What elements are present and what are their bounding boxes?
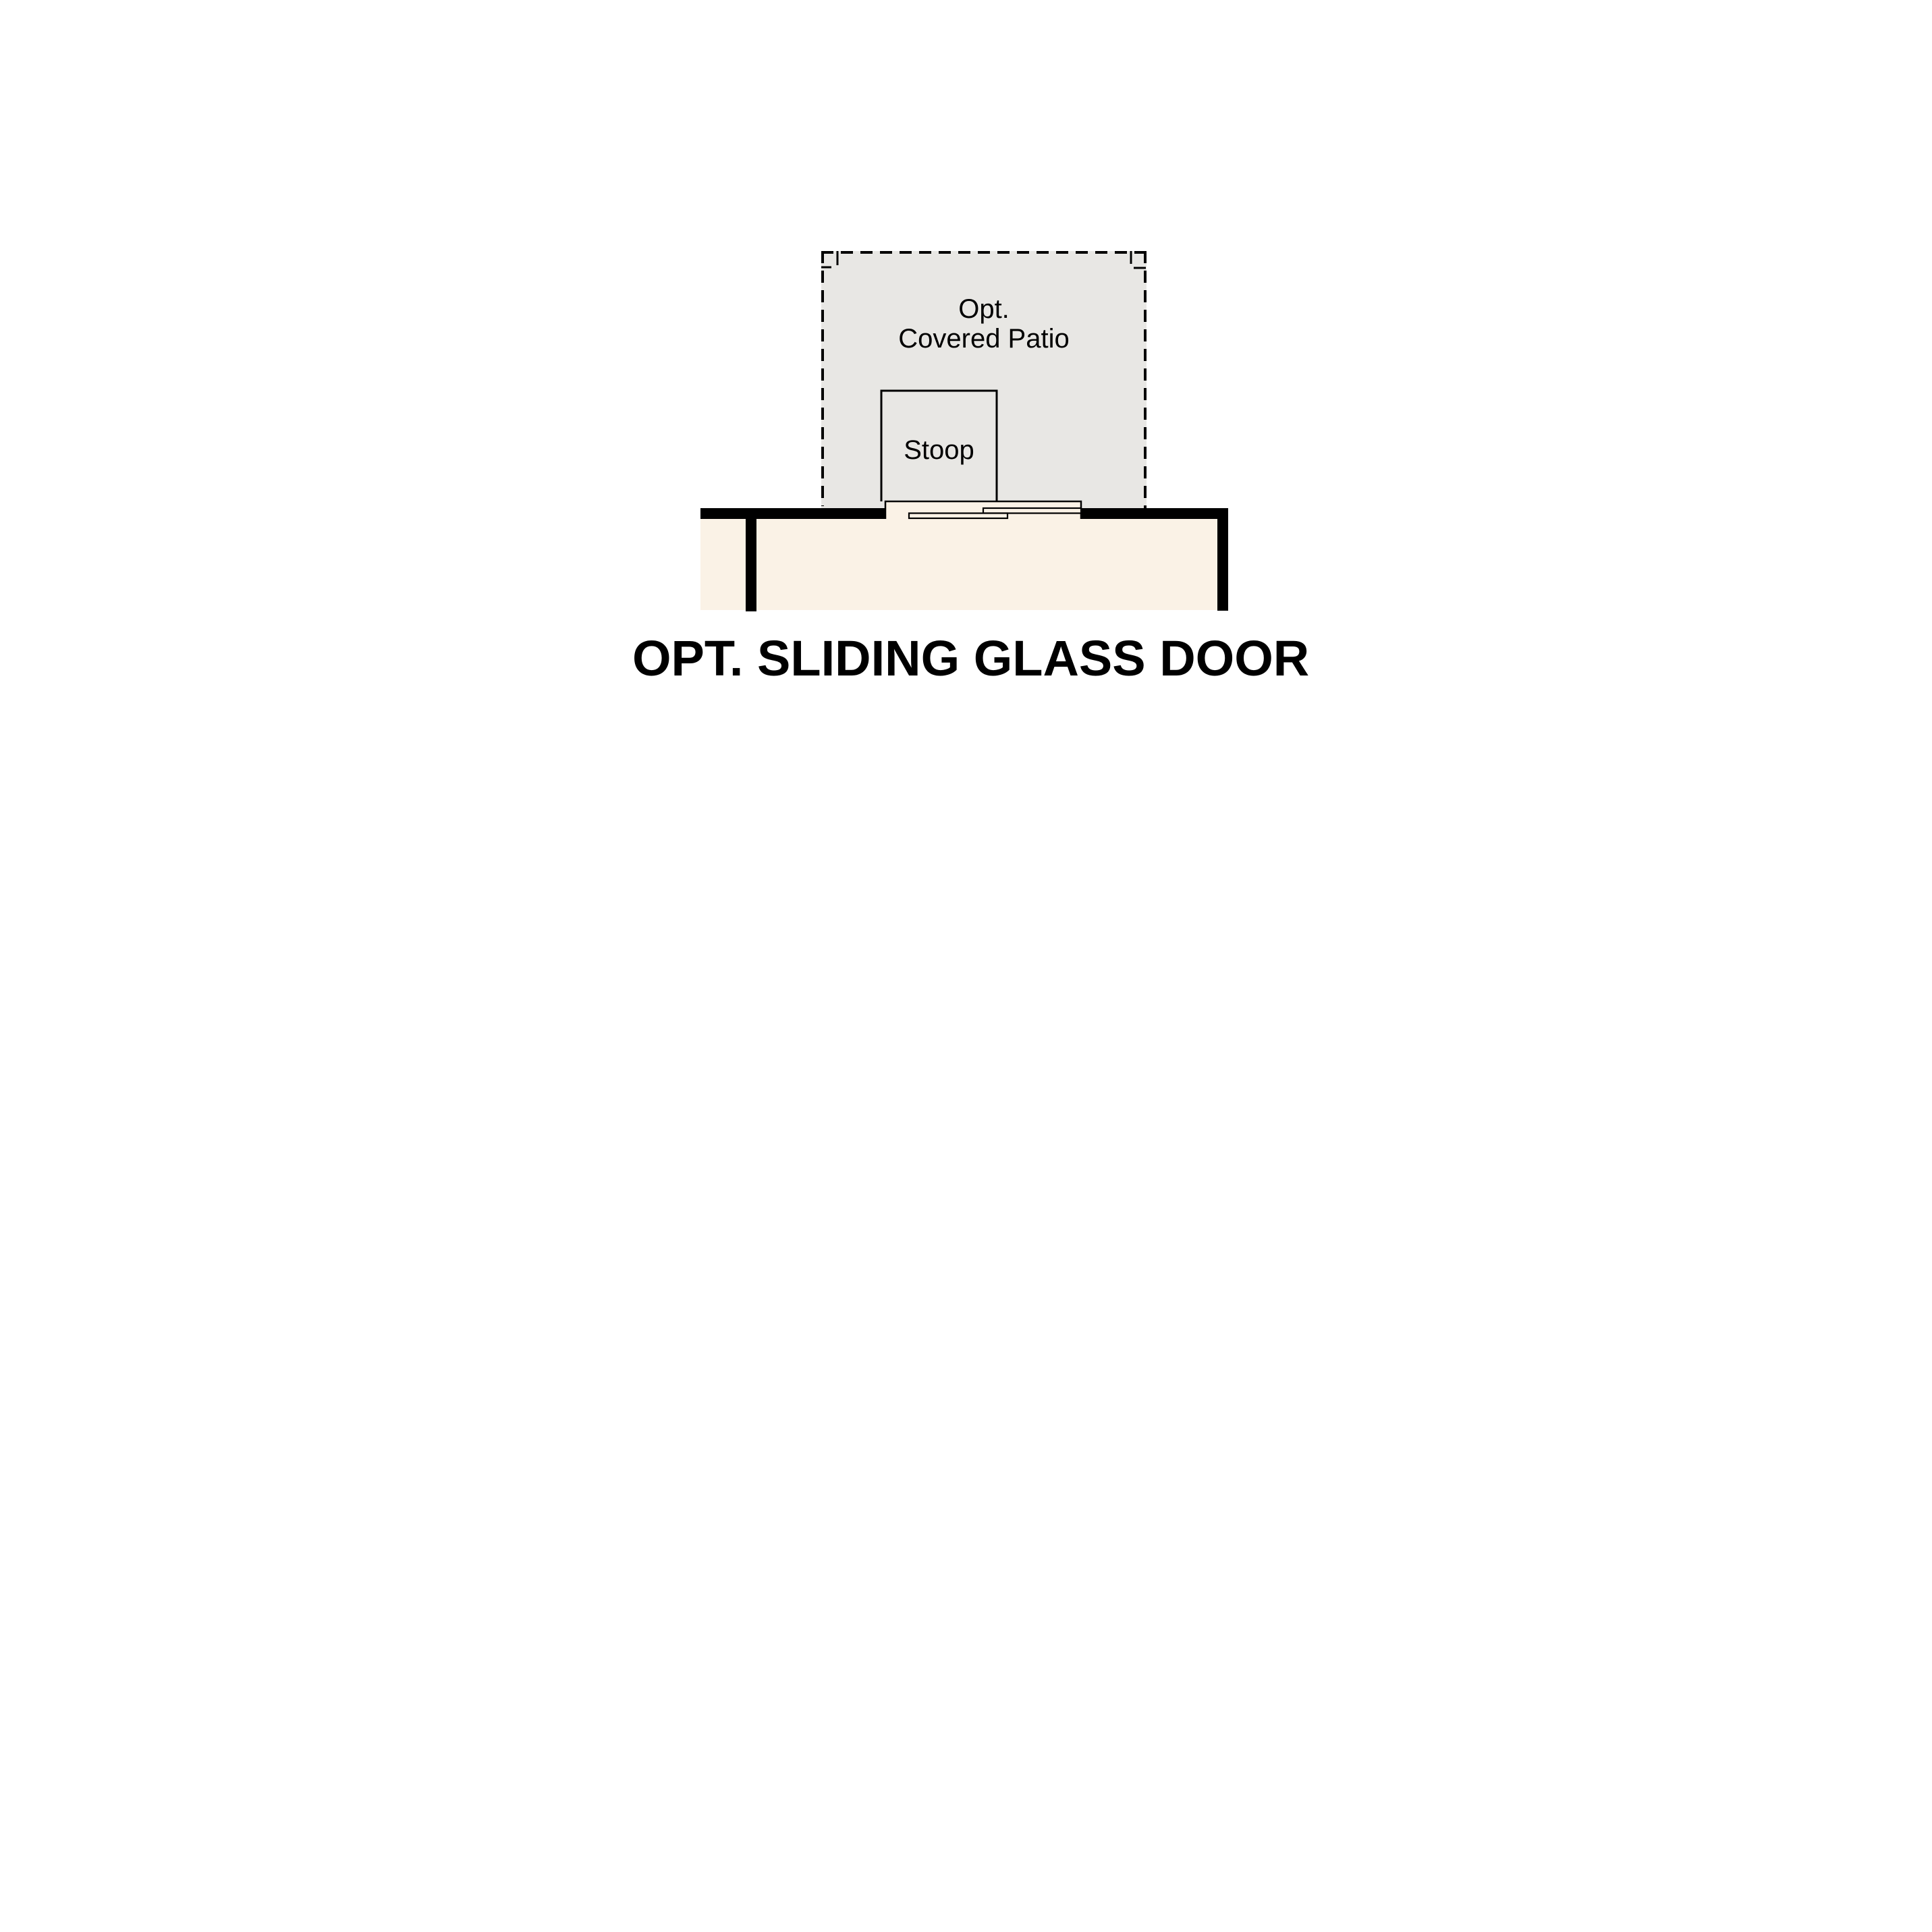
- exterior-wall-right: [1081, 508, 1228, 519]
- stoop-label: Stoop: [881, 435, 997, 465]
- interior-wall: [746, 519, 756, 611]
- patio-area: [821, 251, 1147, 508]
- figure-caption: OPT. SLIDING GLASS DOOR: [632, 632, 1307, 686]
- patio-label: Opt. Covered Patio: [821, 294, 1147, 354]
- exterior-wall-right-vertical: [1217, 508, 1228, 611]
- floor-plan-drawing: [0, 0, 1932, 1932]
- sliding-door-panel-inner: [909, 514, 1008, 519]
- patio-label-line1: Opt.: [821, 294, 1147, 324]
- sliding-door-panel-outer: [983, 508, 1081, 514]
- exterior-wall-left: [700, 508, 885, 519]
- floor-plan-page: Opt. Covered Patio Stoop OPT. SLIDING GL…: [0, 0, 1932, 1932]
- patio-label-line2: Covered Patio: [821, 324, 1147, 354]
- interior-floor: [700, 519, 1217, 610]
